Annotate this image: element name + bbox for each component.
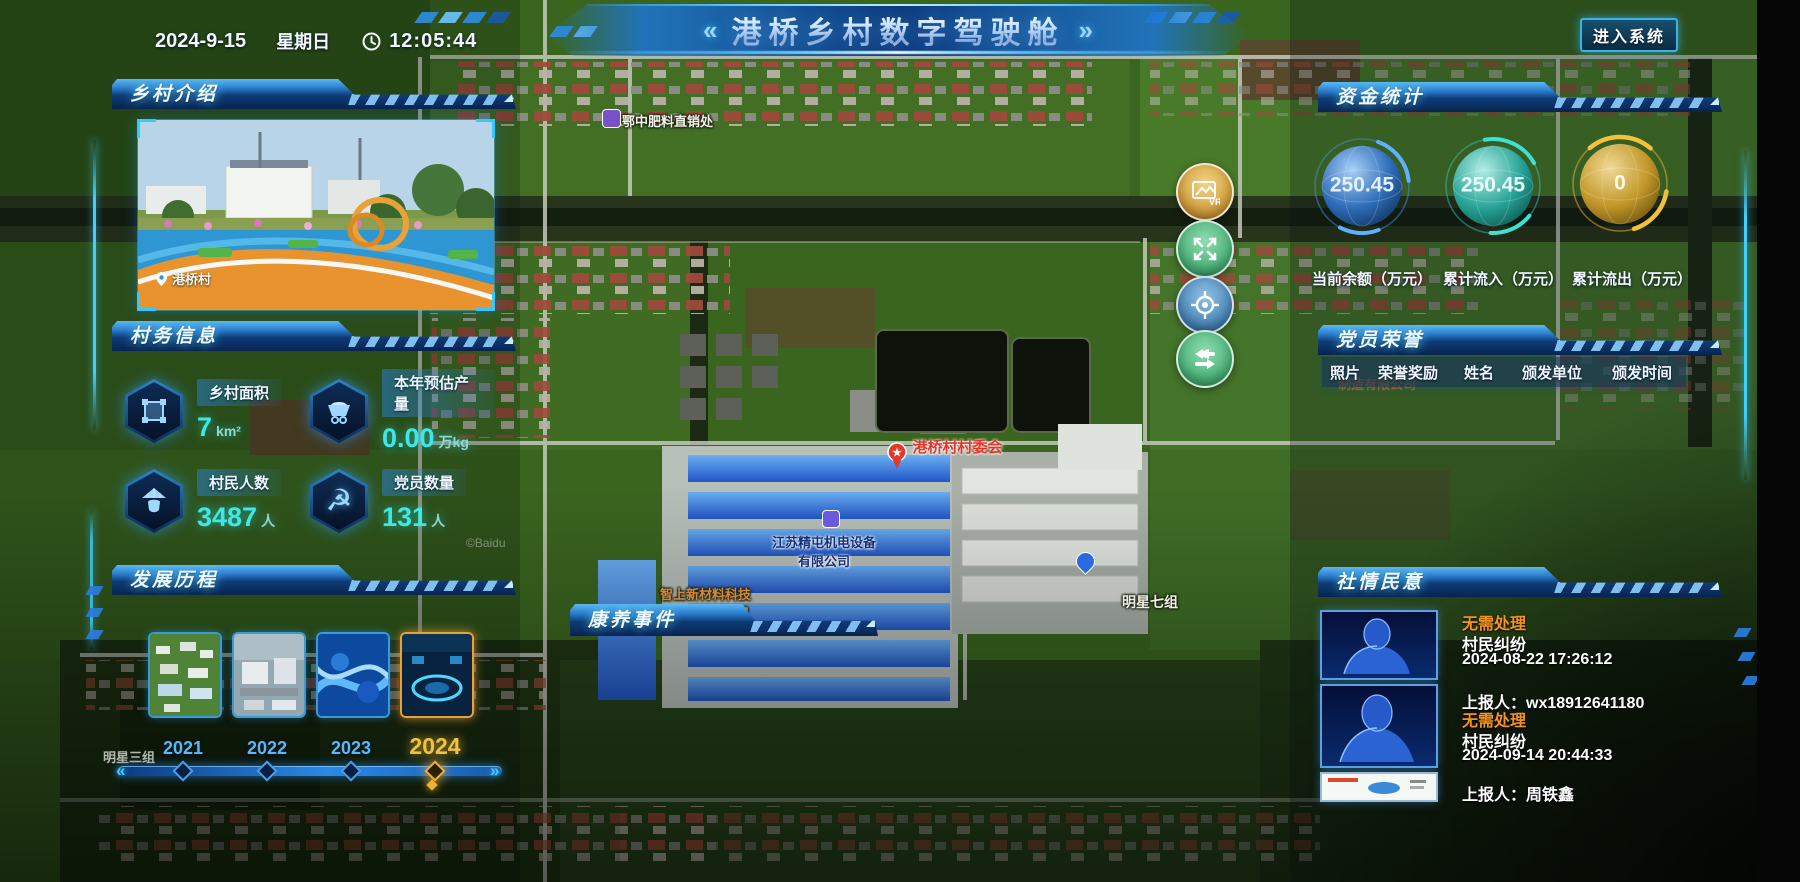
page-title: 港桥乡村数字驾驶舱 <box>732 8 1065 52</box>
stat-value: 131人 <box>382 502 466 533</box>
location-pin-icon <box>156 272 167 286</box>
title-chevron-right: » <box>1079 15 1093 46</box>
gauge-value: 0 <box>1570 172 1670 196</box>
stat-value: 0.00万kg <box>382 423 495 454</box>
current-date: 2024-9-15 <box>155 30 246 53</box>
current-time: 12:05:44 <box>389 30 477 53</box>
dashboard-root: 鄂中肥料直销处 ★ 港桥村村委会 江苏精屯机电设备 有限公司 智上新材料科技 (… <box>0 0 1800 882</box>
stat-estimated-yield: 本年预估产量 0.00万kg <box>310 368 495 454</box>
locate-icon <box>1190 290 1220 320</box>
current-weekday: 星期日 <box>276 28 330 54</box>
map-label-group3[interactable]: 明星三组 <box>103 747 155 766</box>
top-slashes-left <box>418 12 507 23</box>
screen-black-strip <box>1757 0 1800 882</box>
gauge-value: 250.45 <box>1443 174 1543 198</box>
party-icon: ☭ <box>310 469 368 533</box>
switch-arrows-icon <box>1191 345 1219 373</box>
clock-icon <box>362 32 381 51</box>
gauge-value: 250.45 <box>1312 174 1412 198</box>
frame-left-line <box>93 140 96 430</box>
expand-icon <box>1191 235 1219 263</box>
fund-label-balance: 当前余额（万元） <box>1312 268 1432 289</box>
timeline-next-arrow[interactable]: » <box>490 761 499 781</box>
expand-button[interactable] <box>1176 220 1234 278</box>
opinion-avatar[interactable] <box>1320 684 1438 768</box>
history-thumb-2023[interactable] <box>316 632 390 718</box>
opinion-reporter: 上报人：周铁鑫 <box>1462 781 1574 805</box>
svg-text:VR: VR <box>1209 197 1220 207</box>
enter-system-button[interactable]: 进入系统 <box>1580 18 1678 52</box>
honors-table-header: 照片 荣誉奖励 姓名 颁发单位 颁发时间 <box>1322 357 1686 387</box>
timeline-prev-arrow[interactable]: « <box>116 761 125 781</box>
gauge-total-inflow: 250.45 <box>1443 136 1543 236</box>
history-thumb-2024[interactable] <box>400 632 474 718</box>
map-label-fertilizer[interactable]: 鄂中肥料直销处 <box>622 111 713 130</box>
shop-marker-icon <box>602 109 621 128</box>
red-star-pin-icon: ★ <box>886 442 908 470</box>
datetime-bar: 2024-9-15 星期日 12:05:44 <box>155 28 477 54</box>
honors-title: 党员荣誉 <box>1336 331 1424 350</box>
funds-title: 资金统计 <box>1336 88 1424 107</box>
opinions-title: 社情民意 <box>1336 573 1424 592</box>
health-events-title: 康养事件 <box>588 611 676 630</box>
col-award: 荣誉奖励 <box>1378 362 1464 383</box>
intro-title: 乡村介绍 <box>130 85 218 104</box>
villager-icon <box>125 469 183 533</box>
gauge-total-outflow: 0 <box>1570 134 1670 234</box>
vr-photo-icon: VR <box>1190 177 1220 207</box>
stat-label: 党员数量 <box>382 469 466 496</box>
area-icon <box>125 379 183 443</box>
opinion-avatar[interactable] <box>1320 610 1438 680</box>
history-title: 发展历程 <box>130 571 218 590</box>
year-2023[interactable]: 2023 <box>331 738 371 759</box>
year-2024[interactable]: 2024 <box>409 733 460 760</box>
history-thumb-2021[interactable] <box>148 632 222 718</box>
stat-label: 本年预估产量 <box>382 369 495 417</box>
stat-villager-count: 村民人数 3487人 <box>125 458 310 544</box>
opinion-time: 2024-09-14 20:44:33 <box>1462 747 1612 765</box>
stat-party-member-count: ☭ 党员数量 131人 <box>310 458 495 544</box>
col-name: 姓名 <box>1464 362 1522 383</box>
map-label-group7[interactable]: 明星七组 <box>1122 592 1178 612</box>
fund-label-inflow: 累计流入（万元） <box>1443 268 1563 289</box>
opinion-thumb-partial[interactable] <box>1320 772 1438 802</box>
map-label-company1[interactable]: 江苏精屯机电设备 有限公司 <box>772 532 876 570</box>
gauge-current-balance: 250.45 <box>1312 136 1412 236</box>
frame-left-line2 <box>90 510 93 650</box>
svg-text:★: ★ <box>892 447 902 459</box>
year-2021[interactable]: 2021 <box>163 738 203 759</box>
history-thumb-2022[interactable] <box>232 632 306 718</box>
frame-right-line <box>1744 150 1747 480</box>
stat-label: 村民人数 <box>197 469 281 496</box>
affairs-title: 村务信息 <box>130 327 218 346</box>
title-chevron-left: « <box>703 15 717 46</box>
opinion-time: 2024-08-22 17:26:12 <box>1462 651 1612 669</box>
cart-icon <box>310 379 368 443</box>
locate-button[interactable] <box>1176 276 1234 334</box>
col-photo: 照片 <box>1322 362 1378 383</box>
village-photo[interactable]: 港桥村 <box>137 119 495 311</box>
stat-value: 3487人 <box>197 502 281 533</box>
stat-village-area: 乡村面积 7km² <box>125 368 310 454</box>
col-issue-time: 颁发时间 <box>1612 362 1672 383</box>
title-banner: « 港桥乡村数字驾驶舱 » <box>545 4 1251 56</box>
stat-value: 7km² <box>197 412 281 443</box>
stat-label: 乡村面积 <box>197 379 281 406</box>
year-2022[interactable]: 2022 <box>247 738 287 759</box>
company-marker-icon <box>822 510 840 528</box>
switch-button[interactable] <box>1176 330 1234 388</box>
fund-label-outflow: 累计流出（万元） <box>1572 268 1692 289</box>
col-issuer: 颁发单位 <box>1522 362 1612 383</box>
photo-caption: 港桥村 <box>156 269 211 288</box>
map-label-committee[interactable]: ★ 港桥村村委会 <box>886 436 1002 470</box>
vr-photo-button[interactable]: VR <box>1176 163 1234 221</box>
